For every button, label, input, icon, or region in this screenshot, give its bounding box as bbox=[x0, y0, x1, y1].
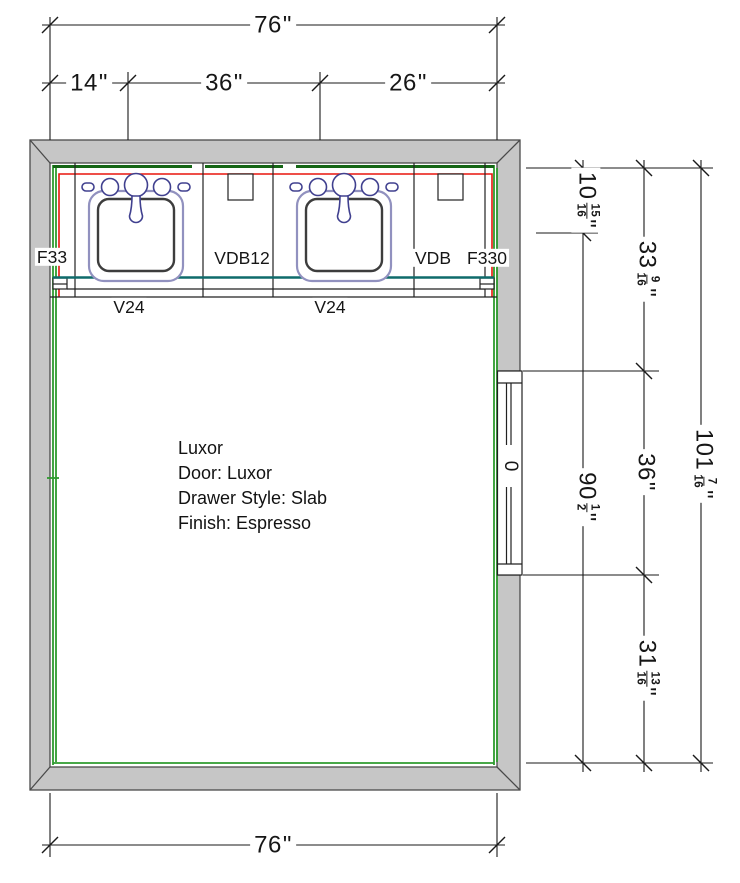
dim-right-sink-to-wall: 9012" bbox=[572, 468, 601, 526]
annotation-line-drawer: Drawer Style: Slab bbox=[178, 486, 327, 511]
label-vanity-left: V24 bbox=[111, 298, 146, 316]
dim-bottom-overall: 76" bbox=[250, 832, 296, 857]
dim-right-wall-to-door: 33916" bbox=[632, 237, 661, 302]
left-drawer-base-plumbing-box bbox=[228, 174, 253, 200]
style-annotation: Luxor Door: Luxor Drawer Style: Slab Fin… bbox=[178, 436, 327, 536]
label-door: 0 bbox=[500, 459, 520, 474]
dim-top-mid: 36" bbox=[201, 70, 247, 95]
dim-top-overall: 76" bbox=[250, 12, 296, 37]
dim-top-right: 26" bbox=[385, 70, 431, 95]
dim-right-overall: 101716" bbox=[689, 425, 718, 503]
label-left-filler: F33 bbox=[35, 248, 69, 266]
label-left-drawer-base: VDB12 bbox=[212, 249, 271, 267]
dim-right-door-width: 36" bbox=[633, 449, 658, 495]
dim-right-sink-offset: 101516" bbox=[572, 168, 601, 233]
label-right-drawer-base: VDB bbox=[413, 249, 453, 267]
annotation-line-finish: Finish: Espresso bbox=[178, 511, 327, 536]
dim-right-door-to-wall: 311316" bbox=[632, 636, 661, 701]
annotation-line-collection: Luxor bbox=[178, 436, 327, 461]
floor-plan-canvas bbox=[0, 0, 740, 883]
floor-plan-drawing: 76" 14" 36" 26" 76" 101516" 9012" 33916"… bbox=[0, 0, 740, 883]
dim-top-left: 14" bbox=[66, 70, 112, 95]
right-drawer-base-plumbing-box bbox=[438, 174, 463, 200]
annotation-line-door: Door: Luxor bbox=[178, 461, 327, 486]
label-vanity-right: V24 bbox=[312, 298, 347, 316]
label-right-filler: F330 bbox=[465, 249, 509, 267]
